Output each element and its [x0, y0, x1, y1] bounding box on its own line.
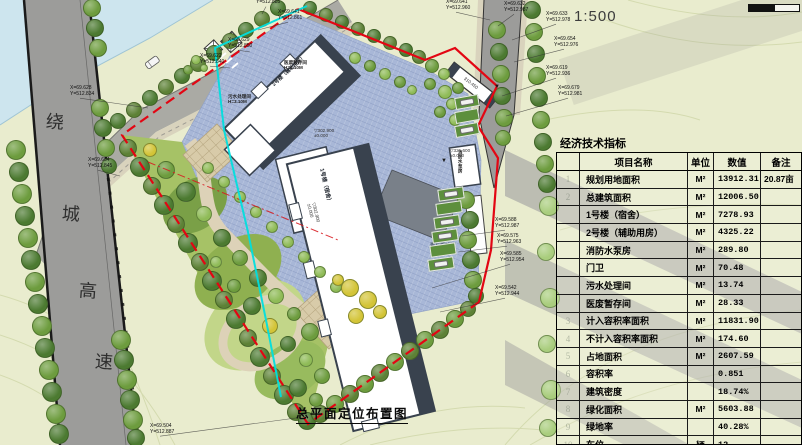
- table-cell: 12: [714, 436, 761, 445]
- table-cell: M²: [688, 348, 714, 366]
- table-cell: 8: [557, 401, 580, 419]
- table-cell: M²: [688, 242, 714, 260]
- table-cell: 70.48: [714, 259, 761, 277]
- table-cell: [761, 242, 801, 260]
- table-row: 7建筑密度18.74%: [557, 383, 801, 401]
- table-cell: 9: [557, 419, 580, 437]
- table-cell: 174.60: [714, 330, 761, 348]
- table-cell: [761, 206, 801, 224]
- table-cell: 5: [557, 348, 580, 366]
- table-cell: M²: [688, 295, 714, 313]
- table-row: 1号楼（宿舍）M²7278.93: [557, 206, 801, 224]
- table-cell: [557, 224, 580, 242]
- table-cell: M²: [688, 171, 714, 189]
- table-cell: [761, 277, 801, 295]
- table-cell: 建筑密度: [580, 383, 688, 401]
- table-cell: 总建筑面积: [580, 189, 688, 207]
- table-cell: 40.28%: [714, 419, 761, 437]
- table-cell: 备注: [761, 153, 801, 171]
- table-cell: 10: [557, 436, 580, 445]
- table-row: 10车位辆12: [557, 436, 801, 445]
- table-row: 5占地面积M²2607.59: [557, 348, 801, 366]
- site-boundary-solid: [298, 9, 498, 302]
- table-cell: 辆: [688, 436, 714, 445]
- table-cell: 绿地率: [580, 419, 688, 437]
- table-cell: [557, 206, 580, 224]
- table-cell: [557, 242, 580, 260]
- table-cell: 2607.59: [714, 348, 761, 366]
- table-row: 9绿地率40.28%: [557, 419, 801, 437]
- table-cell: 消防水泵房: [580, 242, 688, 260]
- table-cell: [557, 153, 580, 171]
- utility-line: [215, 6, 307, 397]
- table-title: 经济技术指标: [560, 135, 626, 151]
- table-cell: 计入容积率面积: [580, 313, 688, 331]
- table-cell: 绿化面积: [580, 401, 688, 419]
- scale-bar-segment: [774, 4, 800, 12]
- table-cell: 13912.31: [714, 171, 761, 189]
- table-row: 污水处理间M²13.74: [557, 277, 801, 295]
- table-cell: [761, 436, 801, 445]
- table-cell: 20.87亩: [761, 171, 801, 189]
- table-cell: 污水处理间: [580, 277, 688, 295]
- table-cell: 11831.90: [714, 313, 761, 331]
- table-cell: [761, 330, 801, 348]
- table-cell: 6: [557, 366, 580, 384]
- table-row: 2总建筑面积M²12006.50: [557, 189, 801, 207]
- table-cell: [557, 277, 580, 295]
- table-cell: 1号楼（宿舍）: [580, 206, 688, 224]
- table-cell: [761, 259, 801, 277]
- table-cell: 2: [557, 189, 580, 207]
- table-cell: 0.851: [714, 366, 761, 384]
- table-cell: M²: [688, 313, 714, 331]
- table-row: 6容积率0.851: [557, 366, 801, 384]
- table-cell: [761, 401, 801, 419]
- table-cell: 3: [557, 313, 580, 331]
- table-cell: 7278.93: [714, 206, 761, 224]
- table-cell: [761, 348, 801, 366]
- table-cell: [688, 383, 714, 401]
- table-row: 2号楼（辅助用房）M²4325.22: [557, 224, 801, 242]
- table-header-row: 项目名称单位数值备注: [557, 153, 801, 171]
- table-cell: 数值: [714, 153, 761, 171]
- table-cell: M²: [688, 277, 714, 295]
- table-cell: 规划用地面积: [580, 171, 688, 189]
- table-cell: 18.74%: [714, 383, 761, 401]
- table-cell: M²: [688, 259, 714, 277]
- table-cell: [761, 189, 801, 207]
- leader-lines: [80, 7, 568, 437]
- table-cell: 12006.50: [714, 189, 761, 207]
- table-cell: 4: [557, 330, 580, 348]
- table-cell: 不计入容积率面积: [580, 330, 688, 348]
- table-cell: M²: [688, 330, 714, 348]
- table-cell: [761, 383, 801, 401]
- table-cell: 门卫: [580, 259, 688, 277]
- scale-label: 1:500: [574, 8, 617, 25]
- table-cell: 2号楼（辅助用房）: [580, 224, 688, 242]
- table-cell: 5603.88: [714, 401, 761, 419]
- table-cell: [761, 419, 801, 437]
- table-cell: [688, 419, 714, 437]
- table-cell: 13.74: [714, 277, 761, 295]
- scale-bar-segment: [748, 4, 774, 12]
- drawing-title: 总平面定位布置图: [296, 403, 408, 424]
- table-cell: M²: [688, 224, 714, 242]
- indicator-table: 项目名称单位数值备注1规划用地面积M²13912.3120.87亩2总建筑面积M…: [556, 152, 802, 445]
- table-cell: [557, 259, 580, 277]
- table-cell: 医废暂存间: [580, 295, 688, 313]
- table-row: 消防水泵房M²289.80: [557, 242, 801, 260]
- table-row: 门卫M²70.48: [557, 259, 801, 277]
- table-cell: [557, 295, 580, 313]
- table-cell: 容积率: [580, 366, 688, 384]
- table-cell: 7: [557, 383, 580, 401]
- table-row: 1规划用地面积M²13912.3120.87亩: [557, 171, 801, 189]
- table-cell: M²: [688, 401, 714, 419]
- setback-line: [148, 162, 338, 240]
- site-plan-drawing: Y=512.885X=69.641 Y=512.861X=69.629 Y=51…: [0, 0, 802, 445]
- table-cell: 289.80: [714, 242, 761, 260]
- table-row: 3计入容积率面积M²11831.90: [557, 313, 801, 331]
- table-row: 4不计入容积率面积M²174.60: [557, 330, 801, 348]
- table-cell: [688, 366, 714, 384]
- table-cell: [761, 313, 801, 331]
- site-boundary-dashed: [122, 9, 479, 424]
- table-cell: 1: [557, 171, 580, 189]
- table-cell: 项目名称: [580, 153, 688, 171]
- table-cell: [761, 366, 801, 384]
- table-cell: M²: [688, 206, 714, 224]
- table-cell: 占地面积: [580, 348, 688, 366]
- table-cell: 单位: [688, 153, 714, 171]
- table-cell: M²: [688, 189, 714, 207]
- table-row: 8绿化面积M²5603.88: [557, 401, 801, 419]
- table-cell: 4325.22: [714, 224, 761, 242]
- table-cell: [761, 224, 801, 242]
- table-row: 医废暂存间M²28.33: [557, 295, 801, 313]
- table-cell: [761, 295, 801, 313]
- table-cell: 车位: [580, 436, 688, 445]
- table-cell: 28.33: [714, 295, 761, 313]
